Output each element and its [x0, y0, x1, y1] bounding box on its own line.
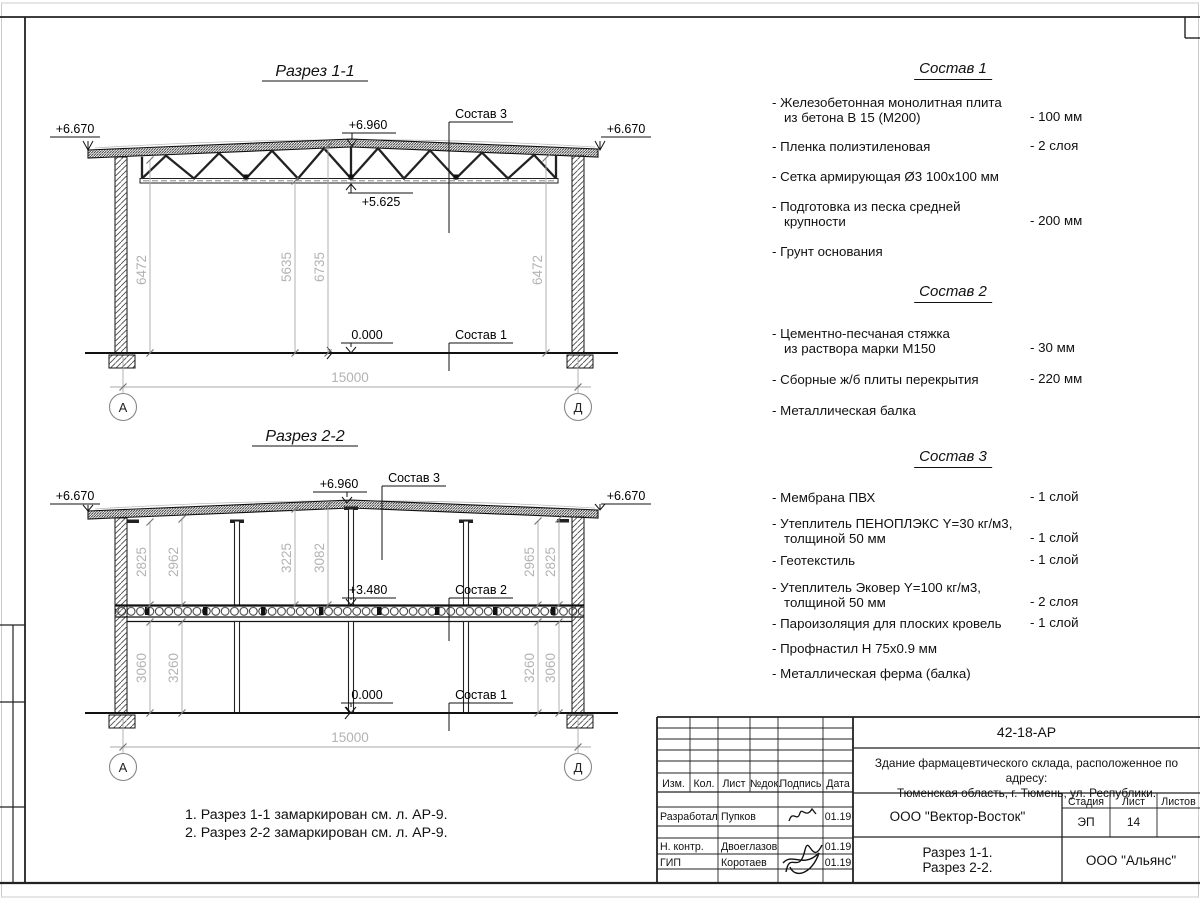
list-item: - Мембрана ПВХ - 1 слой	[772, 490, 1104, 505]
col-date: Дата	[823, 778, 853, 790]
s2-axis-left: А	[119, 760, 128, 775]
s1-elev-right: +6.670	[607, 122, 646, 136]
row-name: Двоеглазов	[721, 841, 777, 853]
s2-leader-floor: Состав 1	[455, 688, 507, 702]
s2-axes: А Д	[110, 754, 592, 781]
s1-wall-right	[572, 156, 584, 353]
s2-span-dim: 15000	[110, 717, 591, 753]
list-item: - Пленка полиэтиленовая - 2 слоя	[772, 139, 1104, 154]
s2-dim-l0: 3060	[134, 653, 149, 683]
notes: 1. Разрез 1-1 замаркирован см. л. АР-9. …	[185, 806, 448, 842]
s1-foundation-left	[109, 355, 135, 368]
s2-dim-u3: 3082	[312, 543, 327, 573]
s1-elev-ridge: +6.960	[349, 118, 388, 132]
s2-dim-l3: 3060	[543, 653, 558, 683]
s2-elev-right: +6.670	[607, 489, 646, 503]
company-name: ООО "Вектор-Восток"	[853, 809, 1062, 824]
s1-elev-chord: +5.625	[362, 195, 401, 209]
s2-dim-u2: 3225	[279, 543, 294, 573]
note-line: 2. Разрез 2-2 замаркирован см. л. АР-9.	[185, 824, 448, 842]
s1-title: Разрез 1-1	[275, 63, 354, 80]
row-name: Пупков	[721, 811, 777, 823]
list-item: - Железобетонная монолитная плита из бет…	[772, 95, 1104, 125]
list-item: - Профнастил Н 75х0.9 мм	[772, 641, 1104, 656]
s2-foundation-right	[567, 715, 593, 728]
s1-foundation-right	[567, 355, 593, 368]
row-date: 01.19	[823, 841, 853, 853]
s1-wall-left	[115, 157, 127, 353]
s2-elev-left: +6.670	[56, 489, 95, 503]
s2-roof	[88, 500, 598, 519]
signatures	[783, 809, 822, 873]
list-item: - Грунт основания	[772, 244, 1104, 259]
list-item: - Сборные ж/б плиты перекрытия - 220 мм	[772, 372, 1104, 387]
note-line: 1. Разрез 1-1 замаркирован см. л. АР-9.	[185, 806, 448, 824]
sheets-label: Листов	[1157, 796, 1200, 808]
list-item: - Сетка армирующая Ø3 100х100 мм	[772, 169, 1104, 184]
s2-leader-slab: Состав 2	[455, 583, 507, 597]
list-item: - Цементно-песчаная стяжка из раствора м…	[772, 326, 1104, 356]
s1-axis-left: А	[119, 400, 128, 415]
doc-code: 42-18-АР	[853, 724, 1200, 740]
stage-value: ЭП	[1062, 815, 1110, 829]
list-item: - Металлическая ферма (балка)	[772, 666, 1104, 681]
section-2-2: Разрез 2-2	[50, 428, 651, 781]
row-role: ГИП	[660, 857, 717, 869]
contractor-name: ООО "Альянс"	[1062, 853, 1200, 868]
list-item: - Утеплитель ПЕНОПЛЭКС Y=30 кг/м3, толщи…	[772, 516, 1104, 546]
s2-elev-ridge: +6.960	[320, 477, 359, 491]
row-name: Коротаев	[721, 857, 777, 869]
col-izm: Изм.	[657, 778, 690, 790]
s2-dim-l2: 3260	[522, 653, 537, 683]
drawing-sheet: Разрез 1-1	[0, 0, 1200, 900]
s2-dim-l1: 3260	[166, 653, 181, 683]
signature-razrabotal	[789, 809, 816, 821]
col-list: Лист	[718, 778, 750, 790]
row-date: 01.19	[823, 857, 853, 869]
s2-dim-u1: 2962	[166, 547, 181, 577]
composition-1-title: Состав 1	[914, 60, 992, 80]
col-doc: №док.	[750, 778, 778, 790]
s1-axis-right: Д	[574, 400, 583, 415]
s2-leader-roof: Состав 3	[388, 471, 440, 485]
s2-elev-zero: 0.000	[351, 688, 382, 702]
s2-dim-u5: 2825	[543, 547, 558, 577]
list-item: - Металлическая балка	[772, 403, 1104, 418]
row-date: 01.19	[823, 811, 853, 823]
composition-2-title: Состав 2	[914, 283, 992, 303]
s2-span: 15000	[331, 730, 369, 745]
s1-leader-floor: Состав 1	[455, 328, 507, 342]
col-sign: Подпись	[778, 778, 823, 790]
list-item: - Утеплитель Эковер Y=100 кг/м3, толщино…	[772, 580, 1104, 610]
s2-title: Разрез 2-2	[265, 428, 344, 445]
stage-label: Стадия	[1062, 796, 1110, 808]
s1-dim-lines	[150, 146, 546, 353]
row-role: Разработал	[660, 811, 717, 823]
s1-dim-right: 6472	[530, 255, 545, 285]
drawing-name: Разрез 1-1. Разрез 2-2.	[853, 845, 1062, 875]
list-item: - Пароизоляция для плоских кровель - 1 с…	[772, 616, 1104, 631]
list-item: - Подготовка из песка средней крупности …	[772, 199, 1104, 229]
sheet-number: 14	[1110, 815, 1157, 829]
s1-dim-left: 6472	[134, 255, 149, 285]
s2-elev-slab: +3.480	[349, 583, 388, 597]
s1-elev-left: +6.670	[56, 122, 95, 136]
s2-foundation-left	[109, 715, 135, 728]
s2-dim-u4: 2965	[522, 547, 537, 577]
composition-3-title: Состав 3	[914, 448, 992, 468]
s1-leader-roof: Состав 3	[455, 107, 507, 121]
section-1-1: Разрез 1-1	[50, 63, 651, 421]
s1-axes: А Д	[110, 394, 592, 421]
project-name: Здание фармацевтического склада, располо…	[856, 756, 1197, 801]
row-role: Н. контр.	[660, 841, 717, 853]
s1-roof	[88, 139, 598, 158]
s1-dim-mid-inner: 5635	[279, 252, 294, 282]
s2-axis-right: Д	[574, 760, 583, 775]
s1-dim-mid-outer: 6735	[312, 252, 327, 282]
col-kol: Кол.	[690, 778, 718, 790]
s1-elev-zero: 0.000	[351, 328, 382, 342]
s1-span-dim: 15000	[110, 357, 591, 393]
s1-span: 15000	[331, 370, 369, 385]
sheet-label: Лист	[1110, 796, 1157, 808]
s2-dim-u0: 2825	[134, 547, 149, 577]
list-item: - Геотекстиль - 1 слой	[772, 553, 1104, 568]
